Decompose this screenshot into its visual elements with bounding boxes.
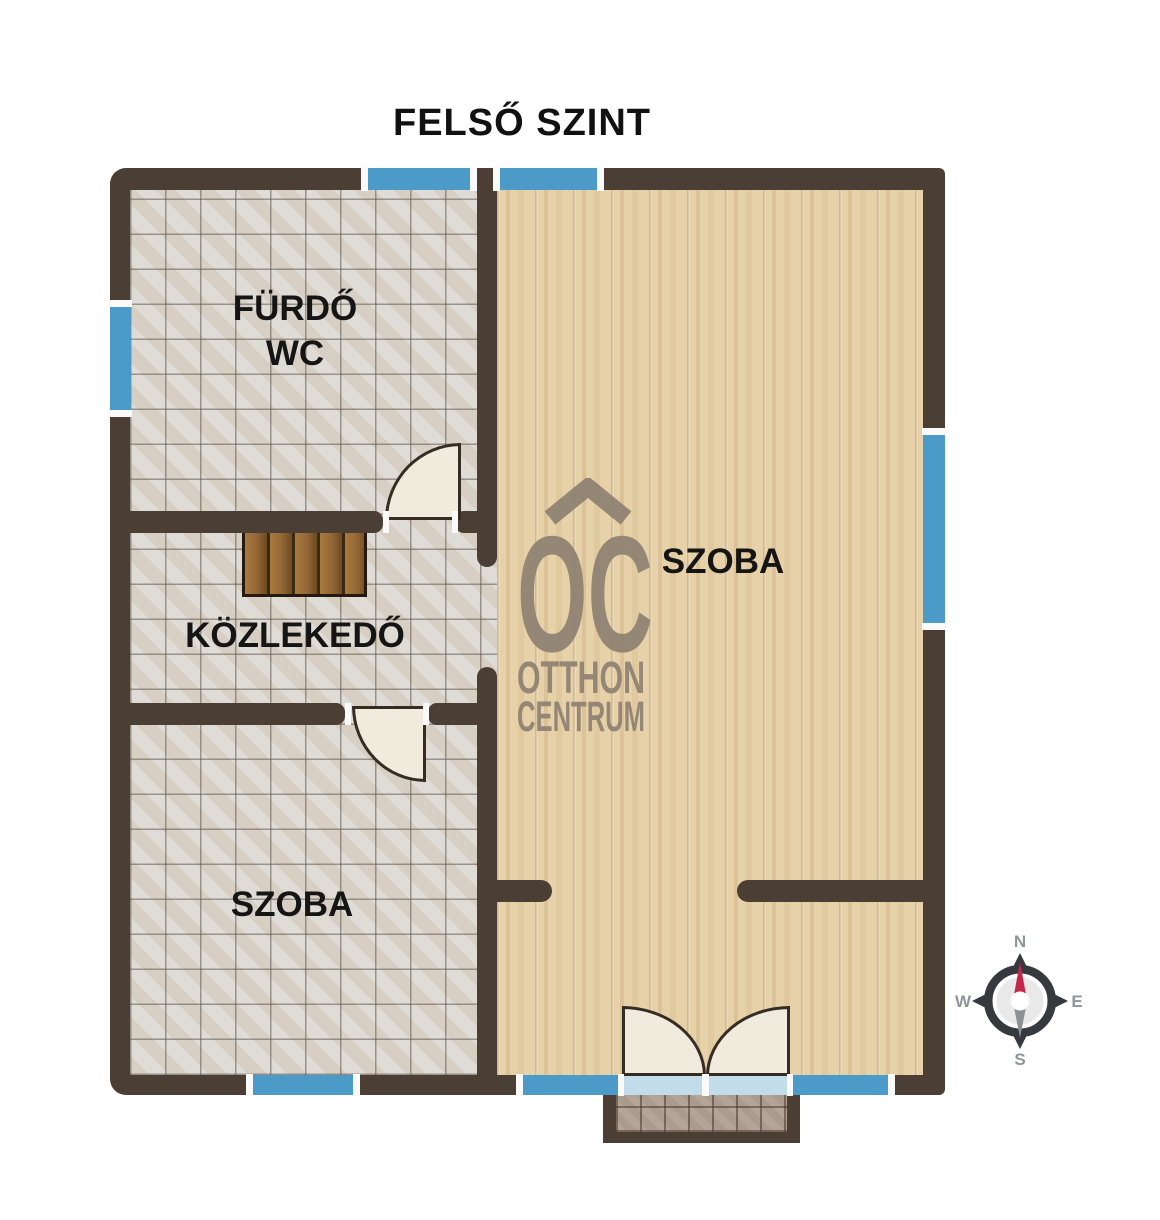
bathroom-label: FÜRDŐ WC [120,287,470,377]
window-cap [888,1074,895,1096]
wall-divider-upper [477,190,497,567]
door-post [452,511,458,533]
window-cap [246,1074,253,1096]
window-cap [922,623,946,630]
window-bottom-left-of-door [523,1075,618,1095]
window-cap [493,167,500,191]
logo-line2: CENTRUM [517,693,645,741]
window-cap [361,167,368,191]
window-cap [353,1074,360,1096]
room-left-label: SZOBA [117,883,467,928]
wall-corridor-room-left [130,703,345,725]
wall-divider-lower [477,667,497,1075]
wall-stub-room-right [737,880,923,902]
window-cap [109,410,132,417]
compass-label-n: N [1014,932,1026,951]
window-cap [922,428,946,435]
compass-label-s: S [1014,1050,1025,1069]
window-cap [470,167,477,191]
window-top-bathroom [368,168,470,190]
door-post [787,1074,793,1096]
wall-stub-room-left [497,880,552,902]
door-post [383,511,389,533]
window-cap [597,167,604,191]
compass-rose: N S W E [950,930,1090,1070]
compass-hub [1011,992,1030,1011]
room-right-label: SZOBA [548,540,898,585]
compass-label-w: W [955,992,972,1011]
window-top-room [500,168,597,190]
watermark-logo: OC OTTHON CENTRUM [484,478,684,758]
door-post [702,1074,709,1096]
window-bottom-left-room [253,1075,353,1095]
window-bottom-right-of-door [793,1075,888,1095]
plan-title: FELSŐ SZINT [300,102,744,145]
window-right-room [923,435,945,623]
bathroom-label-line1: FÜRDŐ [120,287,470,332]
window-cap [516,1074,523,1096]
stairs [242,525,367,597]
bathroom-label-line2: WC [120,332,470,377]
compass-label-e: E [1071,992,1082,1011]
door-post [345,703,351,725]
corridor-label: KÖZLEKEDŐ [120,614,470,659]
door-post [423,703,429,725]
floor-plan-canvas: FELSŐ SZINT OC OTTHON CENTRUM [0,0,1160,1220]
door-post [618,1074,624,1096]
balcony-terrace [603,1095,800,1143]
wall-bathroom-corridor-left [130,511,383,533]
